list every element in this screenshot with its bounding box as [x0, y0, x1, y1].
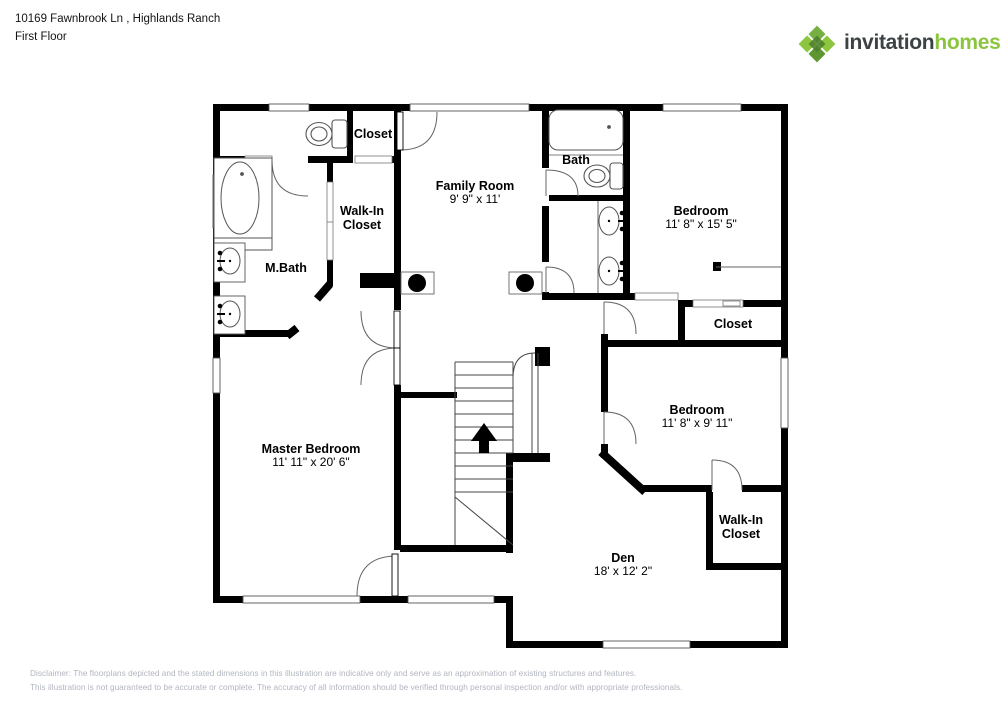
room-label-bedroom-1: Bedroom 11' 8" x 15' 5" [665, 204, 737, 232]
double-sink-vanity-right [598, 201, 626, 293]
floor-plan-drawing [0, 0, 1000, 707]
room-label-walkin-closet-left: Walk-In Closet [329, 204, 395, 232]
room-label-family-room: Family Room 9' 9" x 11' [436, 179, 515, 207]
column-markers [401, 272, 542, 294]
room-label-bedroom-2: Bedroom 11' 8" x 9' 11" [662, 403, 733, 431]
room-label-bath: Bath [562, 153, 590, 167]
toilet-icon [306, 120, 347, 148]
staircase [455, 353, 538, 545]
room-label-walkin-closet-right: Walk-In Closet [708, 513, 774, 541]
bathtub-icon [214, 158, 272, 250]
room-label-closet-right: Closet [714, 317, 752, 331]
room-label-closet-top: Closet [354, 127, 392, 141]
bathtub-icon-2 [549, 110, 623, 155]
disclaimer-line-2: This illustration is not guaranteed to b… [30, 683, 682, 692]
room-label-mbath: M.Bath [265, 261, 307, 275]
floor-plan-page: 10169 Fawnbrook Ln , Highlands Ranch Fir… [0, 0, 1000, 707]
room-label-den: Den 18' x 12' 2" [594, 551, 652, 579]
room-label-master-bedroom: Master Bedroom 11' 11" x 20' 6" [262, 442, 361, 470]
interior-walls [213, 104, 788, 570]
disclaimer-line-1: Disclaimer: The floorplans depicted and … [30, 669, 636, 678]
